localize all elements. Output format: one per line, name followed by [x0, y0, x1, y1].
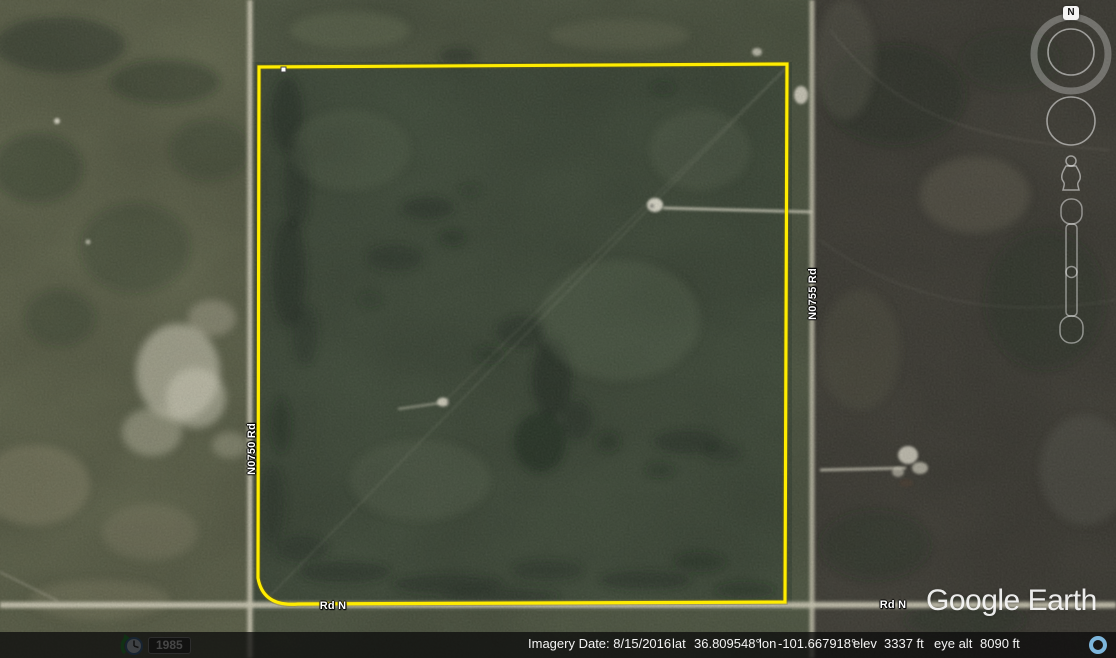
- imagery-date-label: Imagery Date:: [528, 636, 610, 651]
- status-bar: Imagery Date: 8/15/2016 lat 36.809548° l…: [0, 632, 1116, 658]
- elev-value: 3337 ft: [884, 636, 924, 651]
- google-earth-logo: Google Earth: [926, 584, 1097, 618]
- grain-light: [0, 0, 1116, 658]
- boundary-vertex-handle[interactable]: [281, 67, 286, 72]
- lon-label: lon: [759, 636, 776, 651]
- lat-value: 36.809548°: [694, 636, 761, 651]
- google-earth-window: N0750 Rd N0755 Rd Rd N Rd N N Google Ear…: [0, 0, 1116, 658]
- imagery-date-value: 8/15/2016: [613, 636, 671, 651]
- satellite-map-viewport[interactable]: [0, 0, 1116, 658]
- eye-alt-label: eye alt: [934, 636, 972, 651]
- eye-alt-value: 8090 ft: [980, 636, 1020, 651]
- streaming-indicator-icon: [1089, 636, 1107, 654]
- compass-north-badge[interactable]: N: [1063, 6, 1079, 20]
- lat-label: lat: [672, 636, 686, 651]
- lon-value: -101.667918°: [778, 636, 856, 651]
- elev-label: elev: [853, 636, 877, 651]
- imagery-date: Imagery Date: 8/15/2016: [528, 636, 671, 651]
